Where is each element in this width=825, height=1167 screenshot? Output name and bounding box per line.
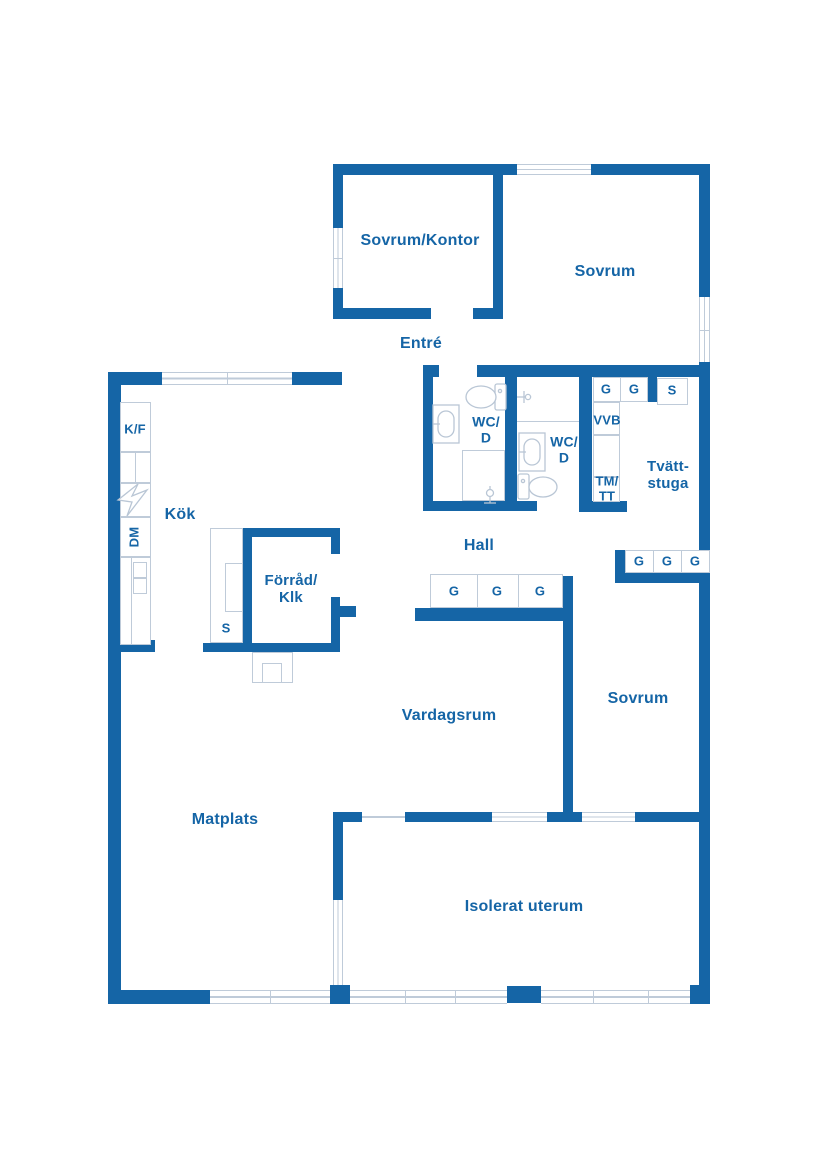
label-wardrobe: G bbox=[601, 383, 611, 398]
room-label-vardagsrum: Vardagsrum bbox=[402, 707, 496, 725]
label-wardrobe: G bbox=[535, 585, 545, 600]
label-water-heater: VVB bbox=[593, 414, 620, 429]
room-label-matplats: Matplats bbox=[192, 811, 259, 829]
shower-icon bbox=[484, 486, 496, 503]
label-wardrobe: G bbox=[449, 585, 459, 600]
label-dishwasher: DM bbox=[128, 527, 143, 548]
room-label-wc-d-2: WC/ D bbox=[550, 434, 578, 465]
fixtures-layer bbox=[0, 0, 825, 1167]
label-wardrobe: G bbox=[492, 585, 502, 600]
label-fridge-freezer: K/F bbox=[124, 423, 146, 438]
room-label-wc-d-1: WC/ D bbox=[472, 414, 500, 445]
label-wardrobe: G bbox=[629, 383, 639, 398]
stove-icon bbox=[118, 484, 147, 516]
room-label-sovrum-kontor: Sovrum/Kontor bbox=[360, 232, 479, 250]
sink-icon bbox=[519, 433, 545, 471]
toilet-icon bbox=[466, 384, 506, 410]
faucet-icon bbox=[517, 391, 531, 403]
label-cleaning-closet: S bbox=[668, 384, 677, 399]
room-label-sovrum-bottom: Sovrum bbox=[608, 690, 669, 708]
floor-plan: Sovrum/Kontor Sovrum Entré WC/ D WC/ D H… bbox=[0, 0, 825, 1167]
sink-icon bbox=[433, 405, 459, 443]
toilet-icon bbox=[518, 474, 557, 499]
room-label-entre: Entré bbox=[400, 335, 442, 353]
label-wardrobe: G bbox=[662, 555, 672, 570]
room-label-hall: Hall bbox=[464, 537, 494, 555]
room-label-sovrum-top: Sovrum bbox=[575, 263, 636, 281]
label-wardrobe: G bbox=[634, 555, 644, 570]
label-washer-dryer: TM/ TT bbox=[596, 474, 619, 503]
room-label-tvattstuga: Tvätt- stuga bbox=[647, 459, 689, 493]
room-label-isolerat-uterum: Isolerat uterum bbox=[465, 898, 584, 916]
room-label-forrad-klk: Förråd/ Klk bbox=[264, 573, 317, 607]
room-label-kok: Kök bbox=[165, 506, 196, 524]
label-wardrobe: G bbox=[690, 555, 700, 570]
label-cleaning-closet: S bbox=[222, 622, 231, 637]
